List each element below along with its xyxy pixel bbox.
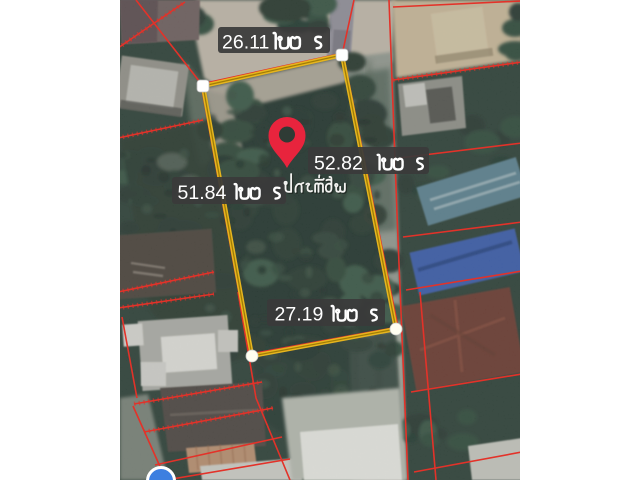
svg-text:52.82: 52.82 (314, 153, 363, 175)
svg-text:27.19: 27.19 (275, 304, 324, 326)
svg-text:26.11: 26.11 (222, 31, 269, 53)
svg-text:51.84: 51.84 (178, 182, 227, 204)
